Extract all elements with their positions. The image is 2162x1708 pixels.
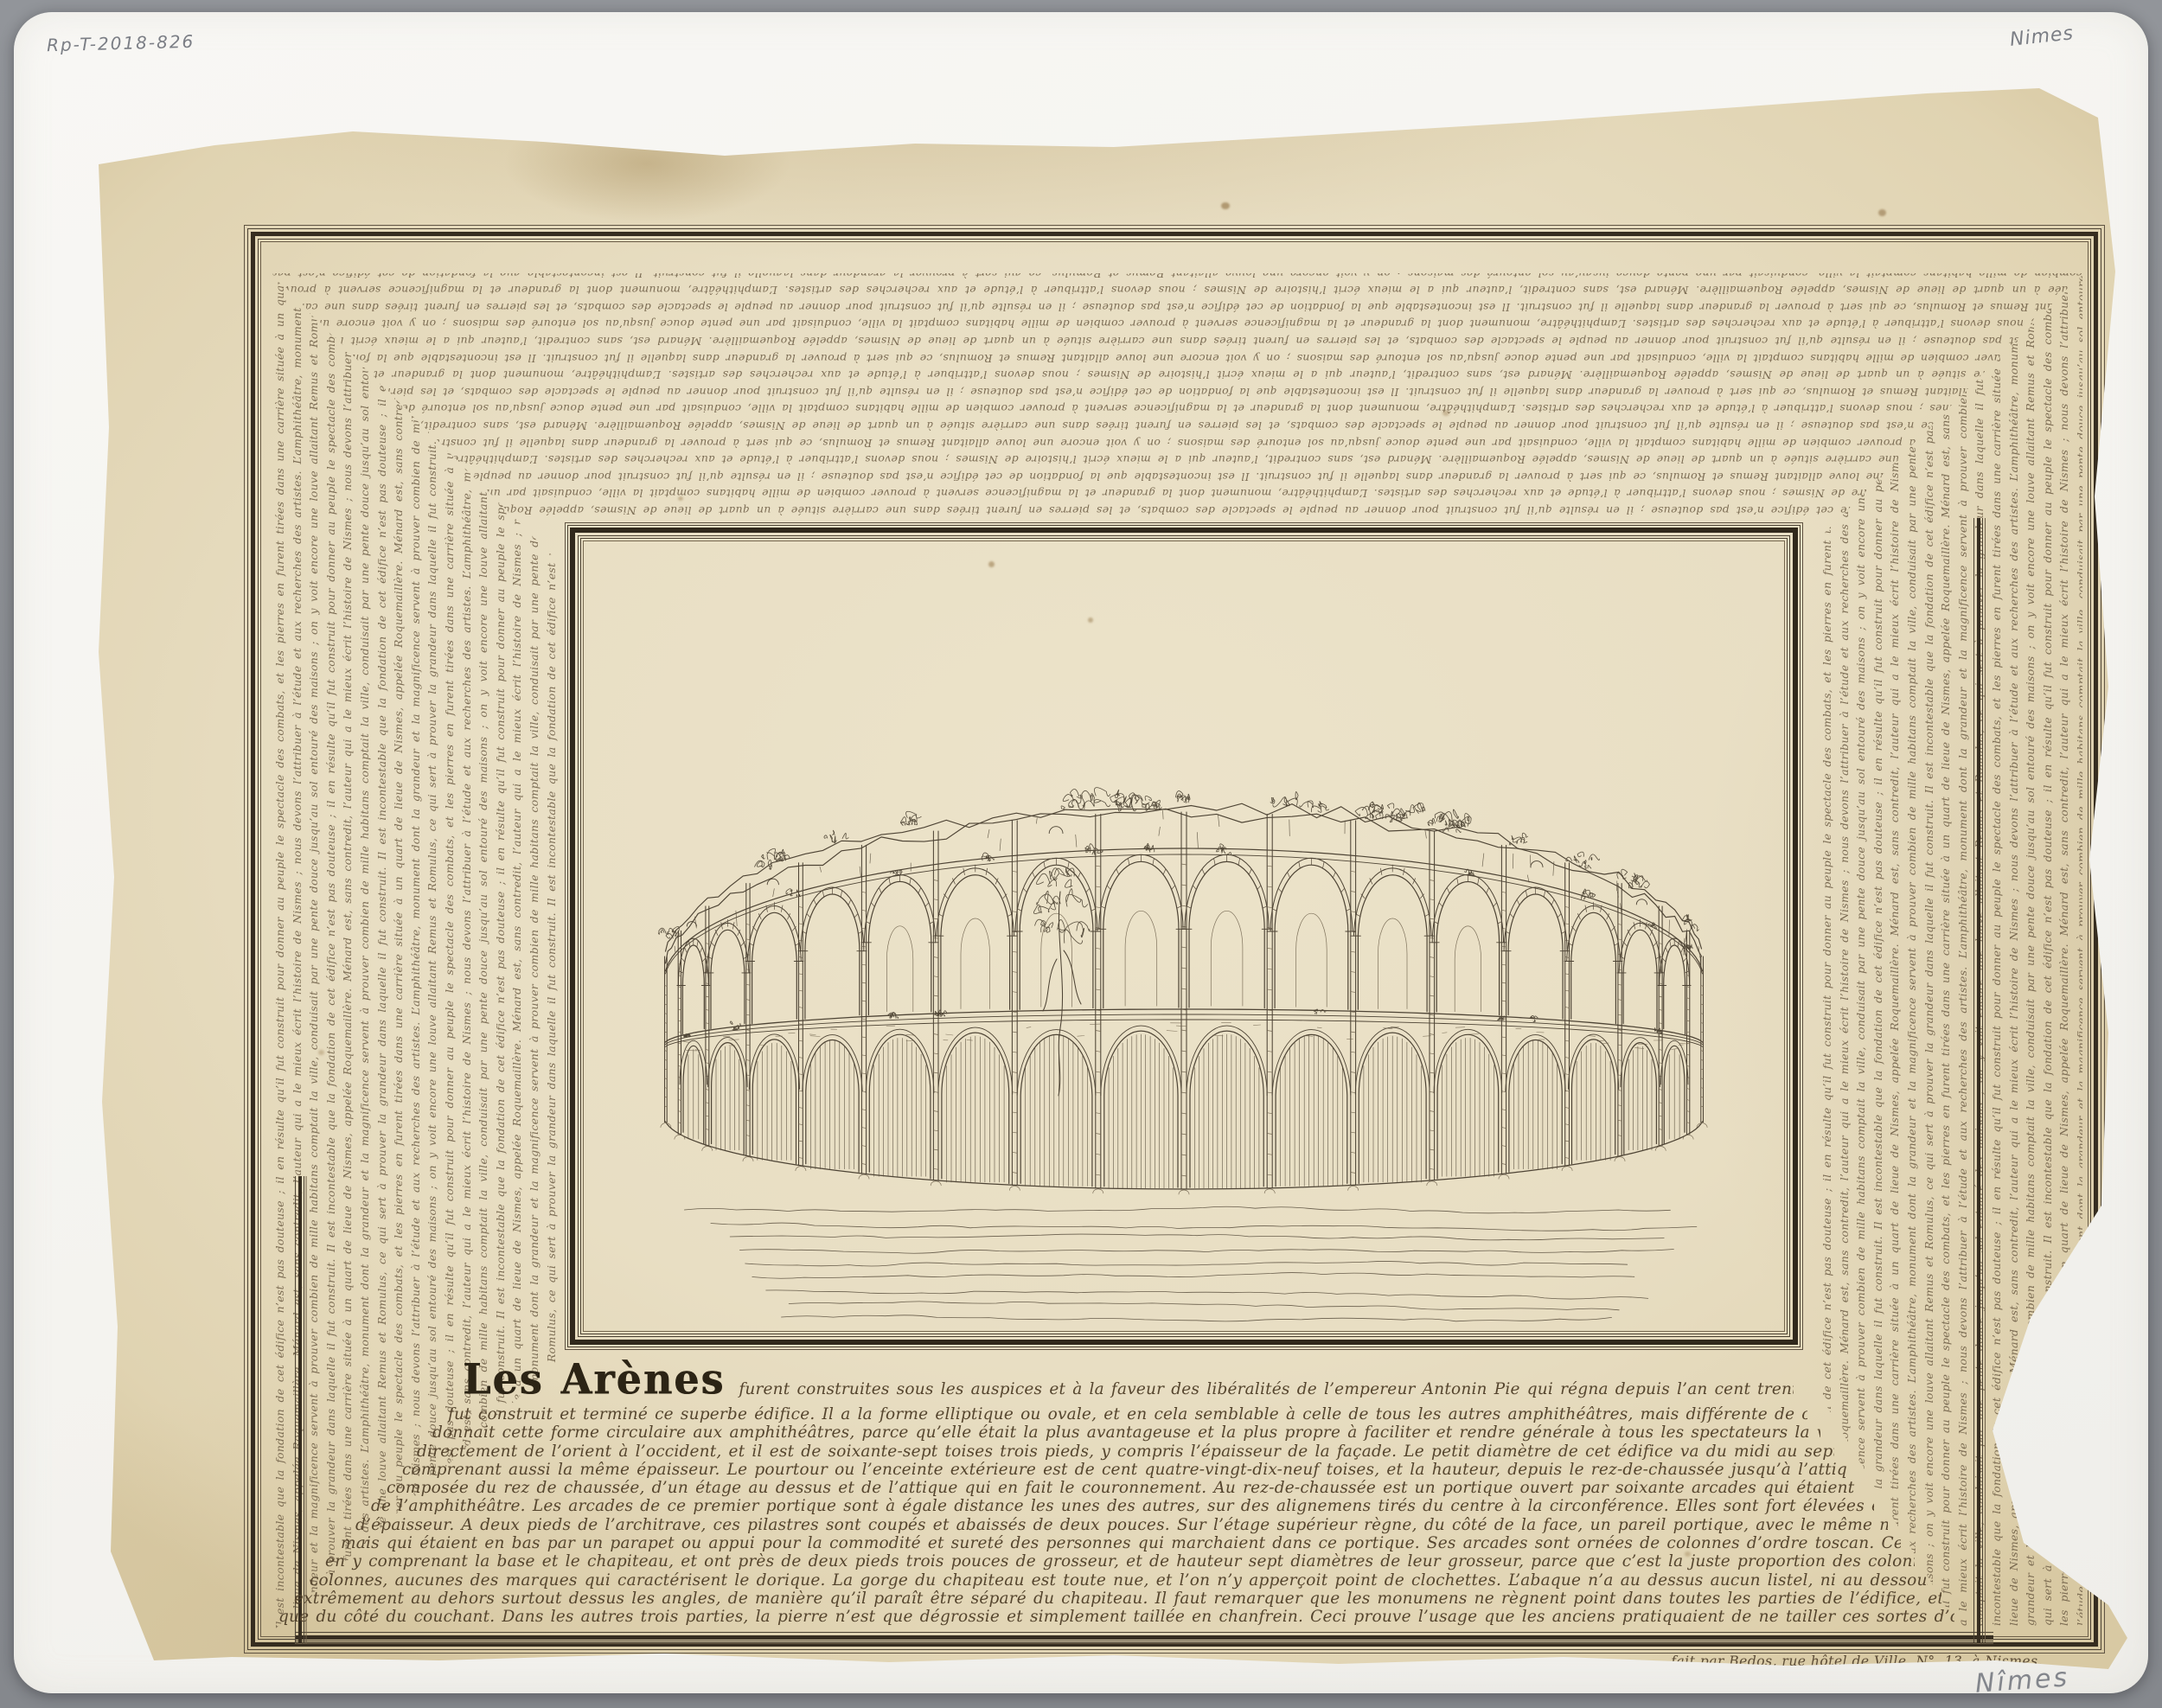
foxing-spot [1878,209,1886,216]
caption-line: donnait cette forme circulaire aux amphi… [432,1423,1820,1442]
mat-board: Rp-T-2018-826 Nimes Nîmes Il est inconte… [14,12,2148,1693]
top-right-pencil-inscription: Nimes [2009,22,2075,51]
caption-line: extrêmement au dehors surtout dessus les… [294,1590,1941,1608]
maker-signature: fait par Bedos, rue hôtel de Ville, N°. … [1569,1654,2043,1669]
caption-line: directement de l’orient à l’occident, et… [417,1443,1834,1461]
caption-line: de l’amphithéâtre. Les arcades de ce pre… [371,1497,1874,1515]
caption-line: d’épaisseur. A deux pieds de l’architrav… [355,1516,1888,1534]
border-script-text: Il est incontestable que la fondation de… [272,273,2082,519]
caption-text: furent construites sous les auspices et … [739,1380,1794,1398]
caption-line: que du côté du couchant. Dans les autres… [278,1608,1954,1626]
caption-line: Les Arènesfurent construites sous les au… [463,1356,1794,1405]
price-inscription: Prix : 10 francs [2095,1695,2162,1708]
bottom-right-pencil-inscription: Nîmes [1974,1662,2070,1699]
caption-line: fut construit et terminé ce superbe édif… [448,1405,1807,1423]
drawing-sheet: Il est incontestable que la fondation de… [93,81,2133,1673]
arena-illustration [586,544,1781,1328]
calligraphic-border-band-top: Il est incontestable que la fondation de… [272,273,2082,519]
caption-block: Les Arènesfurent construites sous les au… [272,1356,1968,1627]
foxing-spot [1221,202,1230,209]
inventory-number-pencil: Rp-T-2018-826 [47,31,195,55]
caption-line: en y comprenant la base et le chapiteau,… [325,1552,1915,1570]
caption-line: colonnes, aucunes des marques qui caract… [310,1571,1928,1590]
picture-frame-border [565,522,1803,1350]
caption-line: mais qui étaient en bas par un parapet o… [341,1534,1901,1552]
title-les-arenes: Les Arènes [463,1356,725,1405]
caption-line: comprenant aussi la même épaisseur. Le p… [402,1461,1847,1479]
photograph-of-calligraphic-drawing: Rp-T-2018-826 Nimes Nîmes Il est inconte… [0,0,2162,1708]
caption-line: composée du rez de chaussée, d’un étage … [387,1479,1861,1497]
